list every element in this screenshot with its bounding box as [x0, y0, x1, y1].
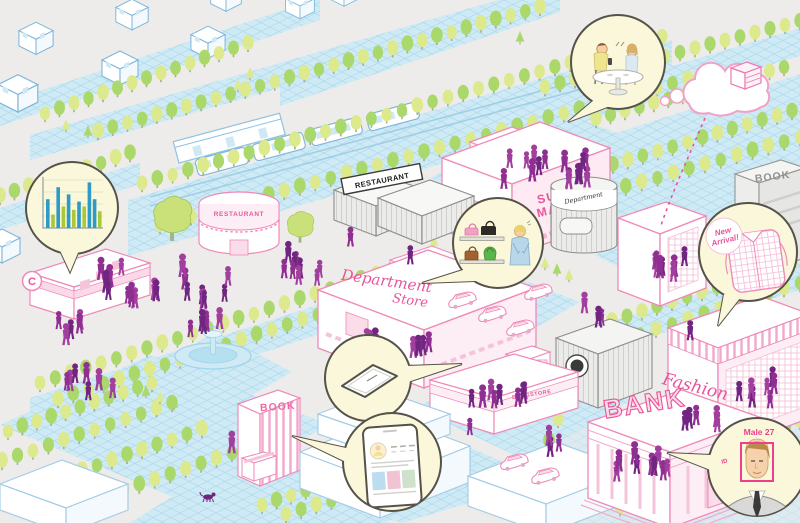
office-cube-building: [618, 202, 706, 306]
face-icon: [745, 439, 770, 478]
book-store-pink-sign-text: BOOK: [260, 400, 296, 414]
round-restaurant-sign-text: RESTAURANT: [214, 211, 265, 218]
chart-bar: [51, 215, 55, 228]
smartphone-profile-icon: [363, 424, 422, 508]
profile-tile-blue: [372, 472, 386, 491]
city-illustration: SUPER MARKET RESTAURANT RESTAURANT C Dep…: [0, 0, 800, 523]
chart-bar: [98, 211, 102, 228]
face-recognition-label: Male 27: [744, 427, 775, 437]
cloud-server-cube-icon: [731, 62, 761, 89]
chart-bar: [77, 202, 81, 228]
chart-bar: [62, 206, 66, 228]
city-illustration-canvas: SUPER MARKET RESTAURANT RESTAURANT C Dep…: [0, 0, 800, 523]
chart-bar: [82, 206, 86, 228]
handbag-green-icon: [484, 247, 496, 260]
chart-bar: [72, 210, 76, 228]
book-store-pink-building: BOOK: [238, 390, 300, 486]
department-tower-building: Department: [551, 177, 617, 253]
chart-bar: [46, 199, 50, 228]
chart-bar: [88, 182, 92, 228]
chart-bar: [93, 199, 97, 228]
chart-bar: [67, 194, 71, 228]
convenience-store-logo: C: [28, 276, 36, 288]
chart-bar: [56, 187, 60, 228]
profile-tile-pink: [387, 470, 401, 489]
profile-tile-green: [402, 469, 416, 488]
round-restaurant-building: RESTAURANT: [199, 192, 279, 255]
